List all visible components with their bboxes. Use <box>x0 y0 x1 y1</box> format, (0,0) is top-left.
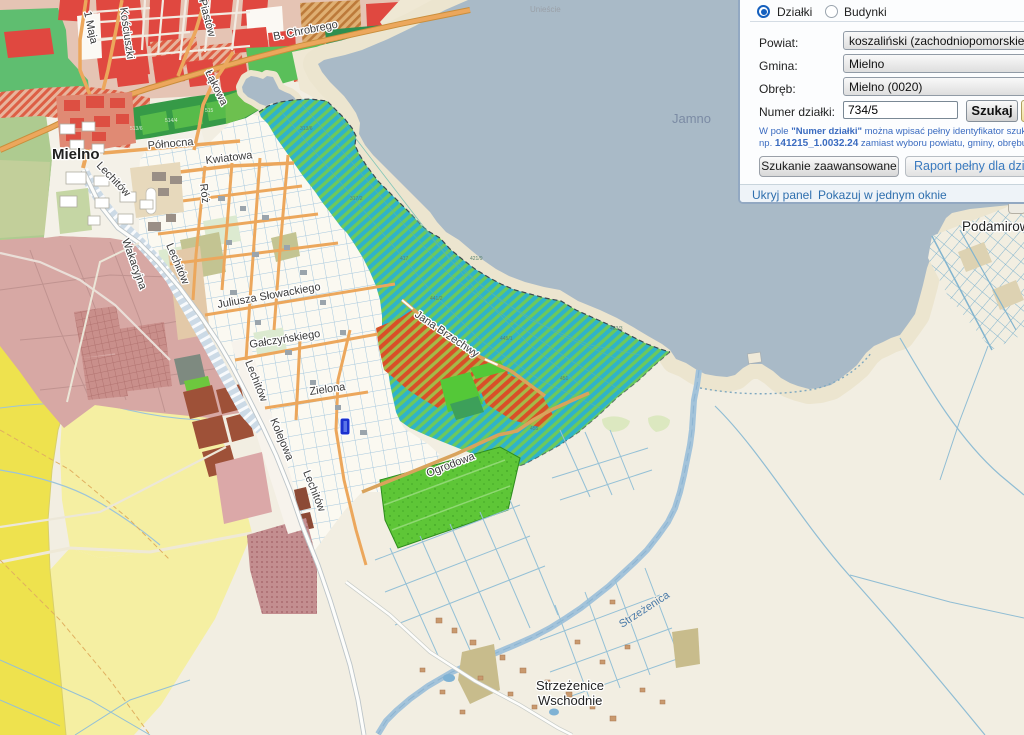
svg-text:445/1: 445/1 <box>500 336 513 342</box>
svg-text:Jamno: Jamno <box>672 111 711 126</box>
svg-text:Róż: Róż <box>197 183 211 204</box>
svg-text:317/2: 317/2 <box>350 196 363 202</box>
svg-text:Podamirowo: Podamirowo <box>962 219 1024 234</box>
svg-text:451: 451 <box>560 376 569 382</box>
svg-text:463/3: 463/3 <box>610 326 623 332</box>
svg-text:Wschodnie: Wschodnie <box>538 693 602 708</box>
svg-text:513/6: 513/6 <box>130 126 143 132</box>
svg-text:441/2: 441/2 <box>430 296 443 302</box>
svg-text:Strzeżenice: Strzeżenice <box>536 678 604 693</box>
svg-text:Unieście: Unieście <box>530 5 561 14</box>
svg-text:417: 417 <box>400 256 409 262</box>
svg-text:515: 515 <box>205 108 214 114</box>
svg-text:313/6: 313/6 <box>300 126 313 132</box>
svg-text:455: 455 <box>530 426 539 432</box>
svg-text:514/4: 514/4 <box>165 118 178 124</box>
svg-text:421/9: 421/9 <box>470 256 483 262</box>
svg-text:Mielno: Mielno <box>52 146 100 163</box>
